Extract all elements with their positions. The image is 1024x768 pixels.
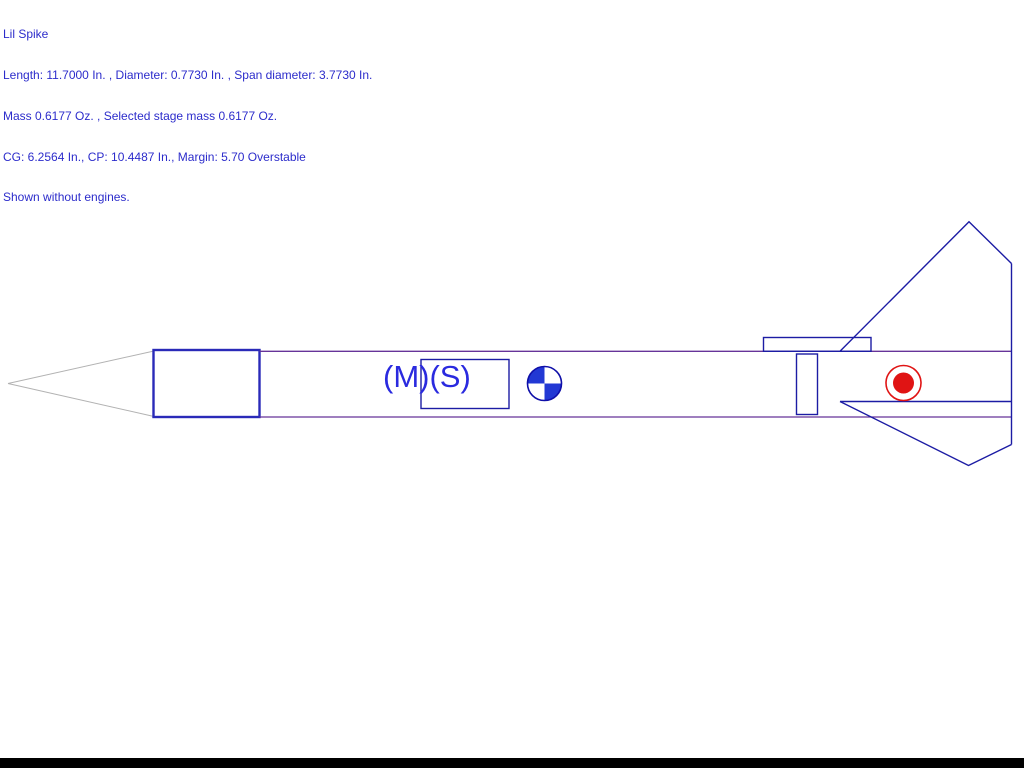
screen-bottom-edge	[0, 758, 1024, 768]
design-canvas-window: Lil Spike Length: 11.7000 In. , Diameter…	[0, 0, 1024, 768]
cg-marker-icon[interactable]	[528, 367, 562, 401]
nose-block[interactable]	[154, 350, 260, 417]
nose-cone[interactable]	[8, 351, 154, 417]
mass-override-label: (M)(S)	[383, 359, 471, 394]
fin-lower[interactable]	[840, 402, 1012, 466]
rocket-side-view[interactable]: (M)(S)	[0, 0, 1024, 768]
engine-block[interactable]	[797, 354, 818, 415]
cp-marker-icon[interactable]	[886, 366, 921, 401]
launch-lug[interactable]	[764, 338, 872, 352]
fin-upper[interactable]	[840, 222, 1012, 352]
